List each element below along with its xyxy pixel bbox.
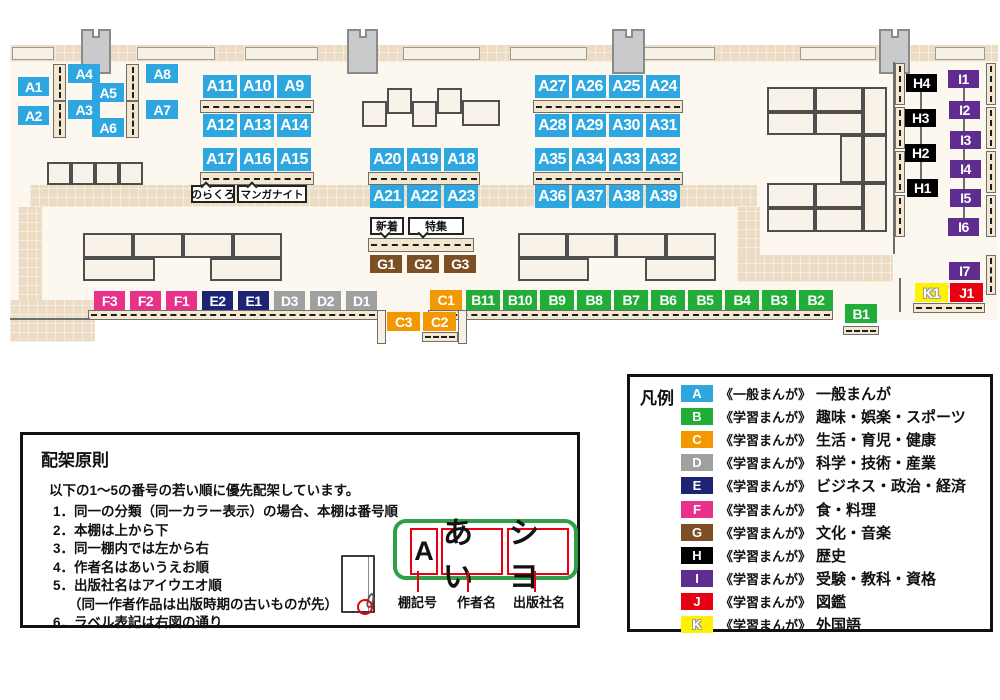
principles-rule: 1．同一の分類（同一カラー表示）の場合、本棚は番号順 (53, 503, 398, 522)
legend-chip-j: J (681, 593, 713, 610)
legend-series-label: 《学習まんが》 (720, 592, 811, 611)
shelf-label-b2: B2 (799, 290, 833, 310)
shelf-label-a35: A35 (535, 148, 569, 171)
shelf-label-a11: A11 (203, 75, 237, 98)
legend-series-label: 《一般まんが》 (720, 384, 811, 403)
legend-category-label: 食・料理 (816, 499, 876, 520)
principles-rule: 2．本棚は上から下 (53, 522, 398, 541)
shelf-label-a5: A5 (92, 83, 124, 102)
shelf-strip (368, 238, 474, 252)
legend-title: 凡例 (640, 384, 674, 409)
shelf-strip-vertical (986, 151, 996, 193)
legend-category-label: 図鑑 (816, 591, 846, 612)
legend-series-label: 《学習まんが》 (720, 523, 811, 542)
shelf-strip (428, 310, 833, 320)
wall-segment (510, 47, 587, 60)
shelf-label-a24: A24 (646, 75, 680, 98)
pillar-icon (612, 29, 645, 74)
reading-table (47, 162, 71, 185)
reading-table (815, 87, 863, 112)
legend-series-label: 《学習まんが》 (720, 569, 811, 588)
shelf-label-b7: B7 (614, 290, 648, 310)
legend-category-label: 外国語 (816, 614, 861, 635)
shelf-strip-vertical (126, 64, 139, 101)
shelf-label-g3: G3 (444, 255, 476, 273)
shelf-label-f1: F1 (166, 291, 197, 310)
reading-table (815, 183, 863, 208)
pillar-icon (347, 29, 378, 74)
reading-table (412, 101, 437, 127)
label-diagram: A あい シヨ (393, 519, 578, 580)
shelf-label-c2: C2 (423, 312, 456, 331)
shelf-label-k1: K1 (915, 283, 948, 302)
legend-chip-f: F (681, 501, 713, 518)
wall-segment (245, 47, 318, 60)
shelf-label-a38: A38 (609, 185, 643, 208)
shelf-label-a13: A13 (240, 114, 274, 137)
reading-table (518, 233, 567, 258)
principles-rule: 6．ラベル表記は右図の通り (53, 614, 398, 633)
partition-line (893, 62, 895, 254)
wall-segment (800, 47, 876, 60)
legend-item-h: H《学習まんが》歴史 (681, 544, 966, 567)
legend-chip-b: B (681, 408, 713, 425)
shelf-strip (422, 332, 458, 342)
legend-items: A《一般まんが》一般まんがB《学習まんが》趣味・娯楽・スポーツC《学習まんが》生… (681, 382, 966, 636)
shelf-label-i3: I3 (950, 131, 981, 149)
reading-table (767, 112, 815, 135)
partition-line (10, 318, 90, 320)
legend-category-label: 科学・技術・産業 (816, 452, 936, 473)
legend-item-g: G《学習まんが》文化・音楽 (681, 521, 966, 544)
shelf-strip (843, 326, 879, 335)
legend-series-label: 《学習まんが》 (720, 546, 811, 565)
shelf-strip (533, 100, 683, 113)
shelf-label-d3: D3 (274, 291, 305, 310)
legend-chip-d: D (681, 454, 713, 471)
reading-table (616, 233, 666, 258)
legend-item-a: A《一般まんが》一般まんが (681, 382, 966, 405)
shelf-label-a21: A21 (370, 185, 404, 208)
shelf-label-e2: E2 (202, 291, 233, 310)
reading-table (863, 87, 887, 135)
manga-floor-map-page: A1A2A4A3A5A6A8A7A11A10A9A12A13A14A17A16A… (0, 0, 1000, 700)
shelf-label-b4: B4 (725, 290, 759, 310)
shelf-label-b5: B5 (688, 290, 722, 310)
shelf-label-i4: I4 (950, 160, 981, 178)
shelf-label-a6: A6 (92, 118, 124, 137)
reading-table (863, 135, 887, 183)
shelf-strip-vertical (986, 255, 996, 295)
shelf-strip-vertical (53, 64, 66, 101)
shelf-label-a31: A31 (646, 114, 680, 137)
legend-category-label: 一般まんが (816, 383, 891, 404)
shelf-label-a14: A14 (277, 114, 311, 137)
wall-segment (137, 47, 215, 60)
feature-sign: 特集 (408, 217, 464, 235)
reading-table (362, 101, 387, 127)
shelf-label-i5: I5 (950, 189, 981, 207)
shelf-label-h3: H3 (905, 109, 936, 127)
author-name-caption: 作者名 (457, 592, 496, 611)
shelf-label-a27: A27 (535, 75, 569, 98)
reading-table (387, 88, 412, 114)
wall-band (737, 255, 893, 282)
publisher-name-caption: 出版社名 (513, 592, 565, 611)
wall-segment (935, 47, 985, 60)
reading-table (119, 162, 143, 185)
reading-table (462, 100, 500, 126)
shelf-label-h1: H1 (907, 179, 938, 197)
wall-band (10, 300, 95, 342)
shelf-label-b3: B3 (762, 290, 796, 310)
reading-table (95, 162, 119, 185)
legend-item-j: J《学習まんが》図鑑 (681, 590, 966, 613)
legend-category-label: ビジネス・政治・経済 (816, 475, 966, 496)
legend-category-label: 生活・育児・健康 (816, 429, 936, 450)
shelf-label-a37: A37 (572, 185, 606, 208)
shelf-label-c3: C3 (387, 312, 420, 331)
shelf-label-a17: A17 (203, 148, 237, 171)
legend-series-label: 《学習まんが》 (720, 430, 811, 449)
legend-chip-i: I (681, 570, 713, 587)
shelf-strip-vertical (986, 107, 996, 149)
shelf-label-a30: A30 (609, 114, 643, 137)
shelf-label-i6: I6 (948, 218, 979, 236)
shelf-label-a3: A3 (68, 100, 100, 119)
legend-chip-g: G (681, 524, 713, 541)
shelf-strip-vertical (53, 101, 66, 138)
shelf-label-a9: A9 (277, 75, 311, 98)
shelf-label-a39: A39 (646, 185, 680, 208)
legend-chip-h: H (681, 547, 713, 564)
reading-table (437, 88, 462, 114)
shelf-label-a16: A16 (240, 148, 274, 171)
legend-category-label: 受験・教科・資格 (816, 568, 936, 589)
reading-table (83, 233, 133, 258)
legend-item-i: I《学習まんが》受験・教科・資格 (681, 567, 966, 590)
shelf-code-box: A (410, 528, 438, 575)
shelf-label-h4: H4 (906, 74, 937, 92)
legend-box: 凡例 A《一般まんが》一般まんがB《学習まんが》趣味・娯楽・スポーツC《学習まん… (627, 374, 993, 632)
legend-item-b: B《学習まんが》趣味・娯楽・スポーツ (681, 405, 966, 428)
shelf-strip-vertical (895, 107, 905, 149)
legend-item-e: E《学習まんが》ビジネス・政治・経済 (681, 474, 966, 497)
legend-item-f: F《学習まんが》食・料理 (681, 497, 966, 520)
shelf-strip (200, 100, 314, 113)
reading-table (767, 87, 815, 112)
shelf-label-i1: I1 (948, 70, 979, 88)
shelf-strip (200, 172, 314, 185)
legend-item-d: D《学習まんが》科学・技術・産業 (681, 451, 966, 474)
principles-box: 配架原則 以下の1～5の番号の若い順に優先配架しています。 1．同一の分類（同一… (20, 432, 580, 628)
principles-title: 配架原則 (41, 446, 109, 471)
shelf-strip (913, 303, 985, 313)
shelf-label-a4: A4 (68, 64, 100, 83)
shelf-label-a22: A22 (407, 185, 441, 208)
reading-table (83, 258, 155, 281)
shelf-label-a10: A10 (240, 75, 274, 98)
author-name-box: あい (441, 528, 503, 575)
pointer-line (534, 571, 536, 592)
shelf-label-a26: A26 (572, 75, 606, 98)
shelf-label-a33: A33 (609, 148, 643, 171)
publisher-name-box: シヨ (507, 528, 569, 575)
reading-table (815, 112, 863, 135)
legend-series-label: 《学習まんが》 (720, 500, 811, 519)
wall-piece (458, 310, 467, 344)
wall-segment (12, 47, 54, 60)
shelf-label-a20: A20 (370, 148, 404, 171)
reading-table (71, 162, 95, 185)
shelf-label-f3: F3 (94, 291, 125, 310)
reading-table (210, 258, 282, 281)
reading-table (815, 208, 863, 232)
shelf-label-b10: B10 (503, 290, 537, 310)
legend-series-label: 《学習まんが》 (720, 615, 811, 634)
reading-table (863, 183, 887, 232)
legend-item-c: C《学習まんが》生活・育児・健康 (681, 428, 966, 451)
legend-chip-e: E (681, 477, 713, 494)
shelf-label-b1: B1 (845, 304, 877, 323)
shelf-label-j1: J1 (950, 283, 983, 302)
shelf-label-a36: A36 (535, 185, 569, 208)
reading-table (567, 233, 616, 258)
legend-category-label: 趣味・娯楽・スポーツ (816, 406, 966, 427)
wall-segment (637, 47, 715, 60)
shelf-label-a8: A8 (146, 64, 178, 83)
shelf-label-a15: A15 (277, 148, 311, 171)
pointer-line (467, 571, 469, 592)
shelf-label-b8: B8 (577, 290, 611, 310)
legend-category-label: 歴史 (816, 545, 846, 566)
legend-series-label: 《学習まんが》 (720, 407, 811, 426)
shelf-label-a32: A32 (646, 148, 680, 171)
wall-segment (403, 47, 480, 60)
shelf-strip-vertical (126, 101, 139, 138)
shelf-label-c1: C1 (430, 290, 462, 310)
reading-table (133, 233, 183, 258)
shelf-strip-vertical (986, 195, 996, 237)
legend-chip-c: C (681, 431, 713, 448)
reading-table (518, 258, 589, 281)
shelf-strip (533, 172, 683, 185)
legend-category-label: 文化・音楽 (816, 522, 891, 543)
new-arrivals-sign: 新着 (370, 217, 404, 235)
legend-series-label: 《学習まんが》 (720, 453, 811, 472)
shelf-label-a29: A29 (572, 114, 606, 137)
principles-intro: 以下の1～5の番号の若い順に優先配架しています。 (49, 479, 359, 499)
shelf-strip-vertical (895, 63, 905, 105)
shelf-label-b6: B6 (651, 290, 685, 310)
shelf-label-i2: I2 (949, 101, 980, 119)
reading-table (767, 208, 815, 232)
manga-night-sign: マンガナイト (237, 185, 307, 203)
label-position-circle-icon (357, 599, 373, 615)
shelf-label-a23: A23 (444, 185, 478, 208)
shelf-label-g2: G2 (407, 255, 439, 273)
legend-chip-a: A (681, 385, 713, 402)
partition-line (920, 82, 922, 188)
partition-line (899, 278, 901, 312)
shelf-label-a34: A34 (572, 148, 606, 171)
shelf-code-caption: 棚記号 (398, 592, 437, 611)
legend-series-label: 《学習まんが》 (720, 476, 811, 495)
shelf-label-d2: D2 (310, 291, 341, 310)
wall-piece (377, 310, 386, 344)
shelf-strip (368, 172, 480, 185)
shelf-label-a1: A1 (18, 77, 49, 96)
shelf-label-g1: G1 (370, 255, 402, 273)
wall-band (737, 207, 760, 257)
shelf-label-a28: A28 (535, 114, 569, 137)
reading-table (666, 233, 716, 258)
shelf-strip-vertical (895, 151, 905, 193)
shelf-strip-vertical (986, 63, 996, 105)
shelf-label-a7: A7 (146, 100, 178, 119)
legend-chip-k: K (681, 616, 713, 633)
shelf-label-i7: I7 (949, 262, 980, 280)
shelf-label-h2: H2 (905, 144, 936, 162)
shelf-label-b9: B9 (540, 290, 574, 310)
shelf-label-e1: E1 (238, 291, 269, 310)
reading-table (233, 233, 282, 258)
norakuro-sign: のらくろ (191, 185, 235, 203)
pointer-line (417, 571, 419, 592)
shelf-label-f2: F2 (130, 291, 161, 310)
shelf-label-a2: A2 (18, 106, 49, 125)
legend-item-k: K《学習まんが》外国語 (681, 613, 966, 636)
reading-table (767, 183, 815, 208)
shelf-label-a12: A12 (203, 114, 237, 137)
reading-table (645, 258, 716, 281)
shelf-label-d1: D1 (346, 291, 377, 310)
shelf-label-a19: A19 (407, 148, 441, 171)
shelf-label-a25: A25 (609, 75, 643, 98)
shelf-strip-vertical (895, 195, 905, 237)
shelf-label-a18: A18 (444, 148, 478, 171)
shelf-label-b11: B11 (466, 290, 500, 310)
reading-table (840, 135, 863, 183)
reading-table (183, 233, 233, 258)
shelf-strip (88, 310, 378, 320)
